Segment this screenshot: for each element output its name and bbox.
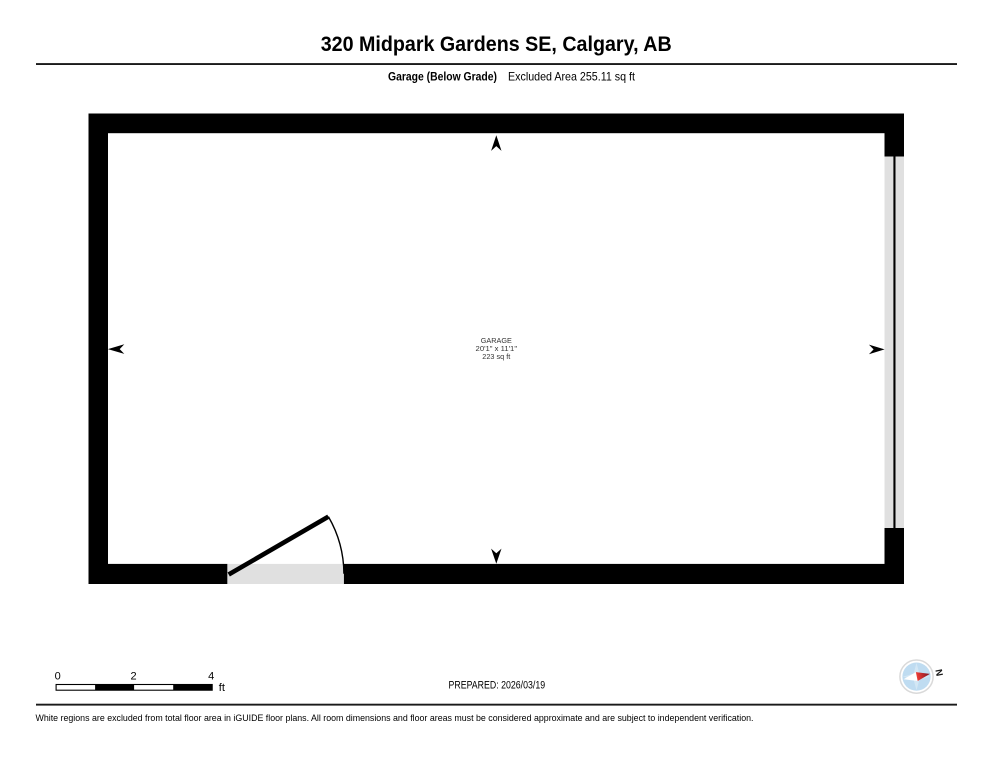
svg-text:4: 4 bbox=[208, 671, 214, 683]
svg-text:ft: ft bbox=[219, 682, 225, 694]
svg-text:320 Midpark Gardens SE, Calgar: 320 Midpark Gardens SE, Calgary, AB bbox=[321, 33, 672, 56]
svg-text:Excluded Area 255.11 sq ft: Excluded Area 255.11 sq ft bbox=[508, 70, 636, 84]
svg-text:0: 0 bbox=[55, 671, 61, 683]
svg-text:White regions are excluded fro: White regions are excluded from total fl… bbox=[36, 713, 754, 723]
svg-text:2: 2 bbox=[130, 671, 136, 683]
svg-text:PREPARED: 2026/03/19: PREPARED: 2026/03/19 bbox=[449, 680, 546, 692]
svg-text:Garage (Below Grade): Garage (Below Grade) bbox=[388, 70, 497, 84]
svg-text:223 sq ft: 223 sq ft bbox=[482, 352, 511, 361]
